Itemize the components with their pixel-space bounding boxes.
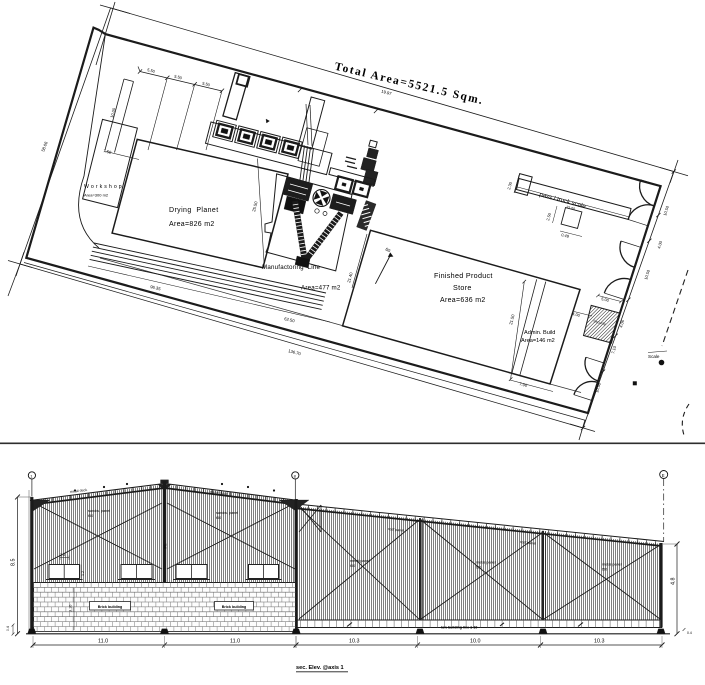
svg-text:Scale: Scale (648, 354, 660, 359)
svg-text:3.10: 3.10 (69, 605, 73, 612)
svg-text:Area=477 m2: Area=477 m2 (301, 285, 341, 292)
svg-text:4.00: 4.00 (572, 311, 582, 318)
svg-text:roof panel: roof panel (520, 540, 537, 546)
svg-text:sandw. panel: sandw. panel (88, 509, 110, 513)
svg-text:metal panel: metal panel (476, 561, 496, 565)
svg-text:0.4: 0.4 (687, 631, 692, 635)
svg-text:Finished Product: Finished Product (434, 271, 493, 280)
svg-text:metal panel: metal panel (350, 559, 370, 563)
svg-text:t50: t50 (476, 566, 481, 570)
svg-text:7.50: 7.50 (103, 148, 113, 155)
svg-text:roof panel: roof panel (388, 527, 405, 533)
svg-text:Drying Planet: Drying Planet (169, 207, 219, 214)
svg-text:t50: t50 (350, 564, 355, 568)
svg-text:10.50: 10.50 (662, 205, 670, 217)
svg-text:4.8: 4.8 (671, 578, 677, 586)
svg-text:1: 1 (30, 474, 33, 479)
svg-text:10.50: 10.50 (643, 269, 651, 281)
svg-text:Brick building: Brick building (98, 605, 123, 609)
svg-text:Area=300 m2: Area=300 m2 (84, 193, 109, 198)
svg-text:pass / truck scale: pass / truck scale (538, 191, 587, 210)
svg-text:sandw. panel: sandw. panel (216, 511, 238, 515)
svg-text:136.70: 136.70 (288, 348, 302, 356)
svg-text:2.50: 2.50 (545, 212, 552, 222)
svg-text:8: 8 (294, 474, 297, 479)
svg-text:1.2: 1.2 (81, 571, 85, 576)
svg-text:2.30: 2.30 (506, 181, 513, 191)
svg-text:5.00: 5.00 (601, 296, 611, 303)
svg-text:Store: Store (453, 283, 472, 292)
svg-text:sec. Elev. @axis 1: sec. Elev. @axis 1 (296, 665, 344, 671)
svg-text:62.50: 62.50 (284, 316, 296, 323)
svg-text:0.4: 0.4 (6, 626, 10, 631)
svg-text:25.50: 25.50 (251, 200, 259, 212)
svg-text:Manufactoring Line: Manufactoring Line (262, 264, 321, 271)
svg-text:11.0: 11.0 (230, 639, 240, 645)
svg-text:5.50: 5.50 (147, 67, 157, 74)
svg-text:Area=826 m2: Area=826 m2 (169, 221, 215, 228)
svg-text:8.5: 8.5 (11, 559, 17, 567)
svg-text:Total Area=5521.5 Sqm.: Total Area=5521.5 Sqm. (333, 61, 485, 108)
svg-text:W o r k s h o p: W o r k s h o p (84, 184, 122, 190)
svg-text:4.06: 4.06 (618, 319, 625, 329)
svg-text:60: 60 (385, 247, 392, 254)
svg-text:21.40: 21.40 (346, 271, 354, 283)
svg-text:7.00: 7.00 (519, 381, 529, 388)
svg-text:t50: t50 (88, 514, 93, 518)
svg-text:7.10: 7.10 (610, 345, 617, 355)
svg-text:Brick building: Brick building (222, 605, 247, 609)
svg-text:IPE: IPE (164, 543, 168, 549)
svg-text:t50: t50 (216, 516, 221, 520)
svg-text:96.35: 96.35 (150, 284, 162, 291)
svg-text:low building line 1-10: low building line 1-10 (441, 625, 477, 629)
svg-text:21.50: 21.50 (508, 313, 516, 325)
svg-text:2.5: 2.5 (60, 553, 65, 557)
svg-text:19.97: 19.97 (381, 89, 393, 97)
svg-text:10.50: 10.50 (594, 382, 602, 394)
svg-text:metal panel: metal panel (602, 563, 622, 567)
svg-text:58.06: 58.06 (40, 140, 49, 152)
svg-text:Area=146 m2: Area=146 m2 (521, 338, 555, 344)
svg-text:10.3: 10.3 (349, 639, 360, 645)
svg-text:11.0: 11.0 (98, 639, 108, 645)
svg-text:4.00: 4.00 (656, 240, 663, 250)
svg-text:Admin. Build: Admin. Build (524, 330, 555, 336)
svg-text:10.0: 10.0 (470, 639, 481, 645)
svg-text:E: E (662, 473, 665, 478)
svg-text:Area=636 m2: Area=636 m2 (440, 297, 486, 304)
svg-text:0.49: 0.49 (561, 232, 571, 239)
svg-text:10.3: 10.3 (594, 639, 605, 645)
svg-text:t50: t50 (602, 568, 607, 572)
